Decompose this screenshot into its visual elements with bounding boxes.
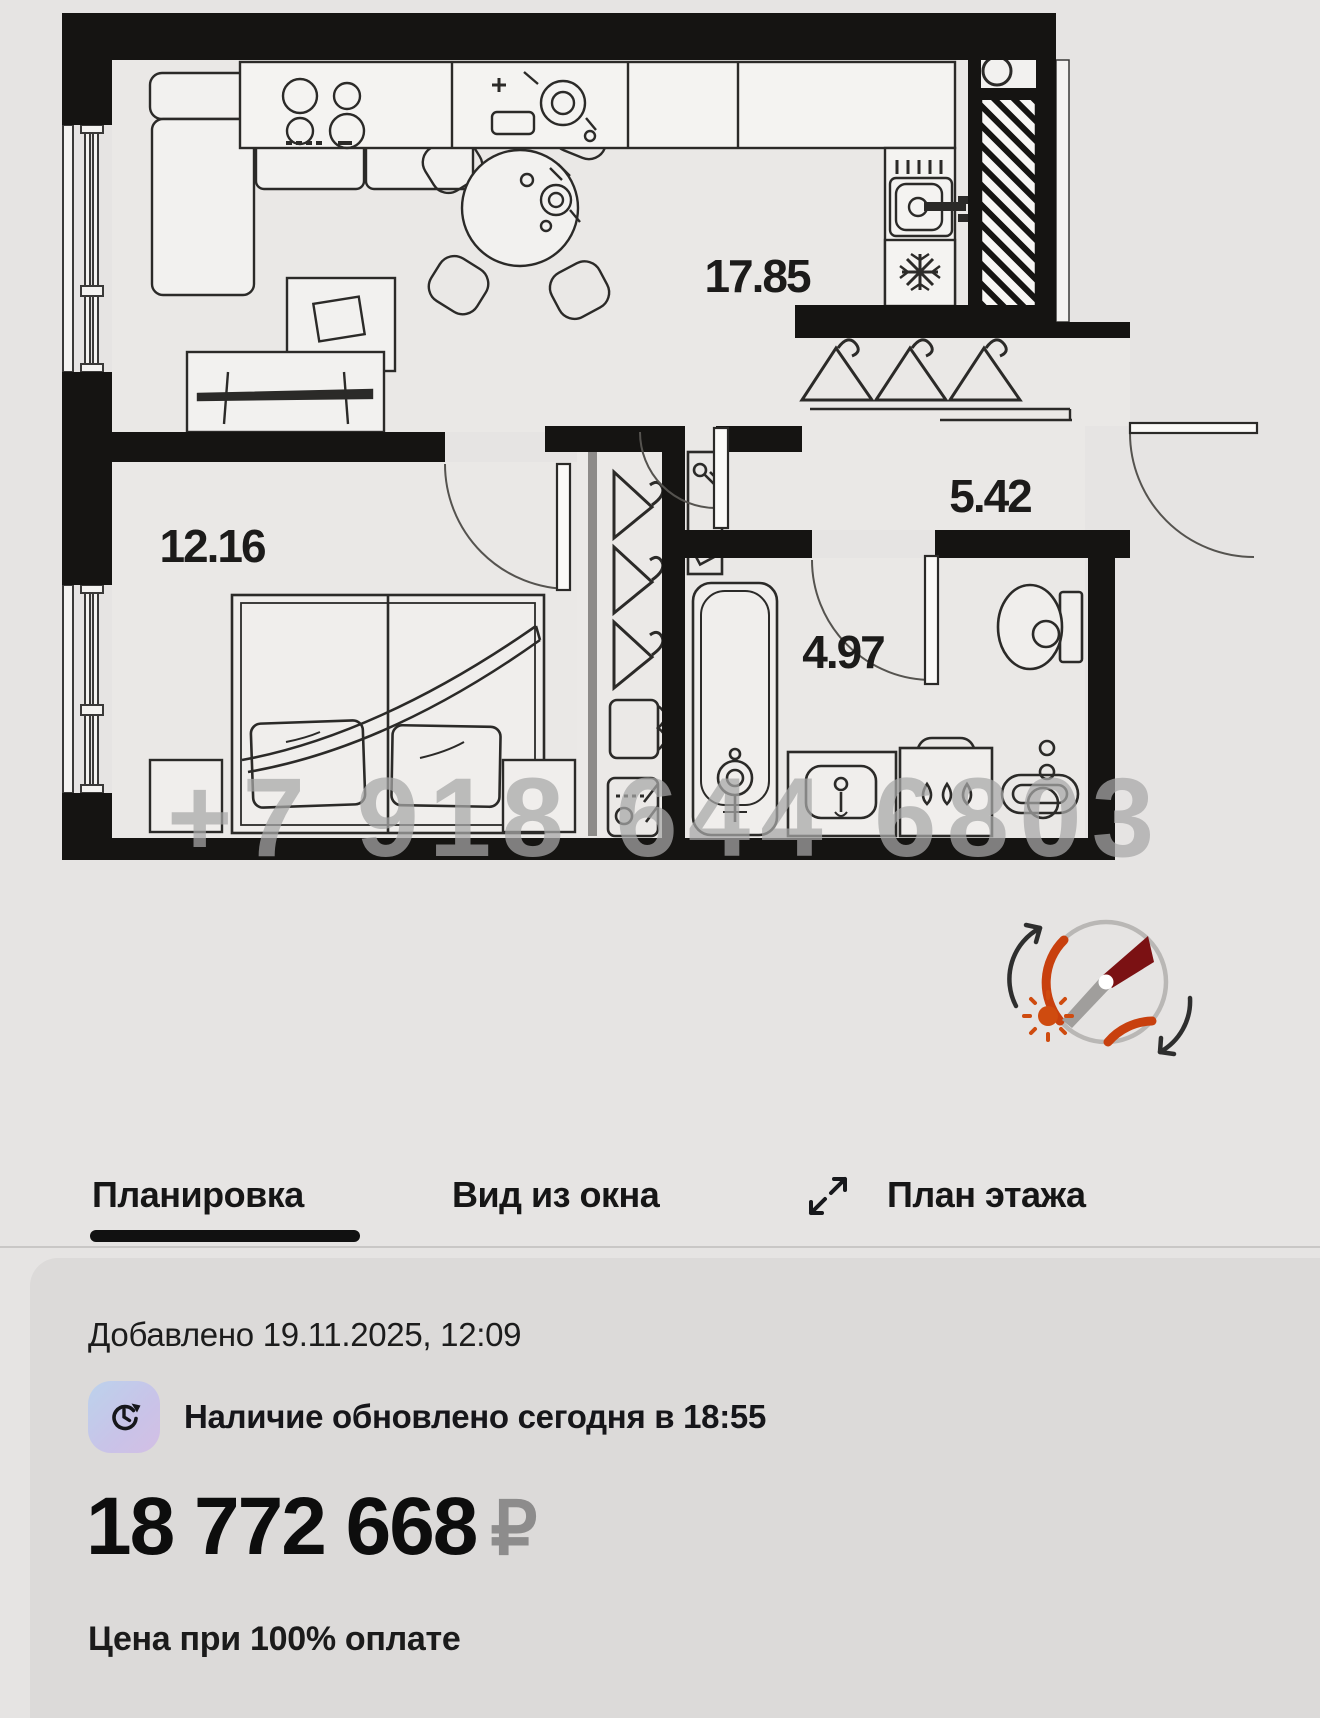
compass-icon (1009, 922, 1190, 1054)
price-currency: ₽ (490, 1487, 537, 1570)
wall-sliver (1056, 60, 1069, 322)
gallery-tabs: Планировка Вид из окна План этажа (0, 1160, 1320, 1250)
tab-plan-etazha[interactable]: План этажа (887, 1174, 1086, 1216)
area-bedroom: 12.16 (159, 520, 265, 572)
tab-vid-iz-okna[interactable]: Вид из окна (452, 1174, 659, 1216)
floorplan-image[interactable]: 17.85 12.16 5.42 4.97 +7 918 644 6803 (0, 0, 1320, 1060)
price-value: 18 772 668 (86, 1481, 476, 1572)
listing-info-card: Добавлено 19.11.2025, 12:09 Наличие обно… (30, 1258, 1320, 1718)
watermark-phone: +7 918 644 6803 (167, 755, 1157, 880)
price-note: Цена при 100% оплате (88, 1620, 460, 1659)
area-hallway: 5.42 (949, 470, 1031, 522)
update-clock-icon (88, 1381, 160, 1453)
availability-text: Наличие обновлено сегодня в 18:55 (184, 1398, 766, 1436)
area-bathroom: 4.97 (802, 626, 884, 678)
door-entry (1130, 423, 1257, 557)
kitchen-counter (240, 62, 955, 148)
price-row: 18 772 668₽ (86, 1480, 538, 1574)
area-kitchen-living: 17.85 (704, 250, 811, 302)
active-tab-indicator (90, 1230, 360, 1242)
fridge (885, 240, 955, 306)
window-living (63, 125, 103, 372)
tab-planirovka[interactable]: Планировка (92, 1174, 304, 1216)
tabs-divider (0, 1246, 1320, 1248)
tv-stand (187, 352, 384, 432)
window-bedroom (63, 585, 103, 793)
added-date: Добавлено 19.11.2025, 12:09 (88, 1316, 521, 1354)
expand-icon (800, 1168, 856, 1224)
shaft-hatch (981, 95, 1036, 322)
toilet (998, 585, 1082, 669)
availability-row: Наличие обновлено сегодня в 18:55 (88, 1380, 766, 1454)
